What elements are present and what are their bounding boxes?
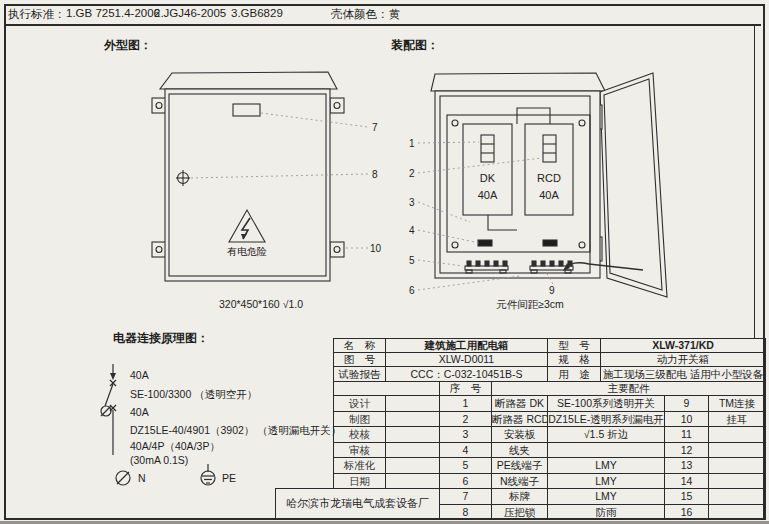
name-label: 名 称 bbox=[334, 339, 386, 353]
standard-2: 2.JGJ46-2005 bbox=[154, 7, 226, 19]
table-row: 日期 6 N线端子 LMY 14 bbox=[334, 473, 766, 489]
test-report-value: CCC：C-032-10451B-S bbox=[386, 367, 548, 382]
sign-label: 审核 bbox=[334, 442, 386, 458]
leader-label-4: 4 bbox=[409, 225, 415, 236]
item-no: 8 bbox=[440, 504, 492, 520]
item-no2: 11 bbox=[665, 427, 709, 443]
outline-caption: 320*450*160 √1.0 bbox=[180, 298, 342, 310]
schematic-spec-line: SE-100/3300 （透明空开） bbox=[130, 388, 257, 402]
schematic-title: 电器连接原理图： bbox=[113, 330, 209, 347]
breaker-rcd-amps: 40A bbox=[539, 189, 559, 201]
item-spec: 防雨 bbox=[548, 504, 665, 520]
cable-gland bbox=[478, 240, 492, 246]
item-name: 断路器 DK bbox=[492, 396, 548, 412]
item-name: 断路器 RCD bbox=[492, 411, 548, 427]
table-row: 标准化 5 PE线端子 LMY 13 bbox=[334, 458, 766, 474]
item-name: 安装板 bbox=[492, 427, 548, 443]
item-name: 压把锁 bbox=[492, 504, 548, 520]
item-name2 bbox=[709, 504, 766, 520]
item-no: 3 bbox=[440, 427, 492, 443]
sign-label: 制图 bbox=[334, 411, 386, 427]
item-no2: 15 bbox=[665, 489, 709, 505]
spec-label: 规 格 bbox=[548, 353, 601, 367]
item-no2: 13 bbox=[665, 458, 709, 474]
item-no2: 9 bbox=[665, 396, 709, 412]
seq-header: 序 号 bbox=[440, 382, 492, 396]
leader-label-2: 2 bbox=[409, 168, 415, 179]
item-name2 bbox=[709, 427, 766, 443]
item-no: 1 bbox=[440, 396, 492, 412]
table-row: 校核 3 安装板 √1.5 折边 11 bbox=[334, 427, 766, 443]
breaker-symbol bbox=[101, 364, 116, 455]
sign-cell bbox=[386, 396, 440, 412]
sign-label: 标准化 bbox=[334, 458, 386, 474]
item-no2: 12 bbox=[665, 442, 709, 458]
pe-ground-symbol bbox=[201, 464, 215, 485]
table-row: 审核 4 线夹 12 bbox=[334, 442, 766, 458]
execution-standards-bar: 执行标准： 1.GB 7251.4-2006 2.JGJ46-2005 3.GB… bbox=[4, 4, 761, 26]
model-label: 型 号 bbox=[548, 339, 601, 353]
schematic-spec-line: DZ15LE-40/4901（3902） （透明漏电开关） bbox=[130, 424, 341, 438]
item-name: 线夹 bbox=[492, 442, 548, 458]
right-margin-line bbox=[754, 24, 755, 338]
outline-drawing: 有电危险 7 8 10 bbox=[140, 58, 390, 320]
parts-header-row: 序 号 主要配件 bbox=[333, 381, 766, 396]
shell-color-value: 黄 bbox=[389, 7, 401, 22]
leader-label-6: 6 bbox=[409, 285, 415, 296]
leader-label-10: 10 bbox=[370, 243, 382, 254]
neutral-symbol bbox=[116, 471, 130, 485]
leader-label-1: 1 bbox=[409, 138, 415, 149]
item-no: 5 bbox=[440, 458, 492, 474]
item-name2 bbox=[709, 458, 766, 474]
title-block: 名 称 建筑施工用配电箱 型 号 XLW-371/KD 图 号 XLW-D001… bbox=[333, 338, 765, 519]
item-name2: 挂耳 bbox=[709, 411, 766, 427]
item-no2: 10 bbox=[665, 411, 709, 427]
title-block-header: 名 称 建筑施工用配电箱 型 号 XLW-371/KD 图 号 XLW-D001… bbox=[333, 338, 766, 382]
item-no: 7 bbox=[440, 489, 492, 505]
assembly-title: 装配图： bbox=[391, 37, 439, 54]
item-name2 bbox=[709, 489, 766, 505]
sign-cell bbox=[386, 473, 440, 489]
standard-3: 3.GB6829 bbox=[231, 7, 283, 19]
item-name: 标牌 bbox=[492, 489, 548, 505]
outline-title: 外型图： bbox=[104, 37, 152, 54]
table-row: 制图 2 断路器 RCD DZ15LE-透明系列漏电开 10 挂耳 bbox=[334, 411, 766, 427]
shell-color-label: 壳体颜色： bbox=[331, 7, 389, 22]
item-no: 4 bbox=[440, 442, 492, 458]
assembly-caption: 元件间距≥3cm bbox=[455, 298, 605, 312]
warning-text: 有电危险 bbox=[227, 246, 267, 257]
empty-cell bbox=[334, 382, 440, 396]
open-door bbox=[597, 73, 667, 297]
item-name: N线端子 bbox=[492, 473, 548, 489]
parts-header: 主要配件 bbox=[492, 382, 766, 396]
leader-label-8: 8 bbox=[372, 169, 378, 180]
schematic-spec-line: 40A bbox=[130, 369, 149, 381]
item-spec: √1.5 折边 bbox=[548, 427, 665, 443]
item-no2: 14 bbox=[665, 473, 709, 489]
item-spec: SE-100系列透明开关 bbox=[548, 396, 665, 412]
neutral-label: N bbox=[138, 472, 146, 484]
item-name2: TM连接 bbox=[709, 396, 766, 412]
assembly-drawing: DK 40A RCD 40A 1 2 3 4 5 6 9 bbox=[403, 56, 705, 308]
manufacturer: 哈尔滨市龙瑞电气成套设备厂 bbox=[275, 488, 440, 519]
pe-label: PE bbox=[222, 472, 236, 484]
breaker-dk-label: DK bbox=[480, 172, 496, 184]
item-spec: LMY bbox=[548, 489, 665, 505]
item-name: PE线端子 bbox=[492, 458, 548, 474]
model-value: XLW-371/KD bbox=[601, 339, 766, 353]
item-name2 bbox=[709, 442, 766, 458]
cable-gland bbox=[543, 240, 557, 246]
cabinet-roof bbox=[160, 72, 337, 89]
standards-label: 执行标准： bbox=[8, 7, 66, 22]
sign-cell bbox=[386, 411, 440, 427]
leader-label-7: 7 bbox=[372, 122, 378, 133]
sign-cell bbox=[386, 442, 440, 458]
usage-value: 施工现场三级配电 适用中小型设备 bbox=[601, 367, 766, 382]
breaker-dk-amps: 40A bbox=[478, 189, 498, 201]
drawing-no-value: XLW-D0011 bbox=[386, 353, 548, 367]
sign-cell bbox=[386, 427, 440, 443]
item-spec: LMY bbox=[548, 458, 665, 474]
assembly-roof bbox=[431, 73, 605, 91]
sign-cell bbox=[386, 458, 440, 474]
standard-1: 1.GB 7251.4-2006 bbox=[66, 7, 160, 19]
test-report-label: 试验报告 bbox=[334, 367, 386, 382]
item-spec: LMY bbox=[548, 473, 665, 489]
schematic-spec-line: (30mA 0.1S) bbox=[130, 454, 188, 466]
usage-label: 用 途 bbox=[548, 367, 601, 382]
item-name2 bbox=[709, 473, 766, 489]
leader-label-5: 5 bbox=[409, 255, 415, 266]
item-no2: 16 bbox=[665, 504, 709, 520]
sign-label: 校核 bbox=[334, 427, 386, 443]
sign-label: 设计 bbox=[334, 396, 386, 412]
item-no: 6 bbox=[440, 473, 492, 489]
item-spec: DZ15LE-透明系列漏电开 bbox=[548, 411, 665, 427]
schematic-spec-line: 40A/4P（40A/3P） bbox=[130, 440, 220, 454]
item-spec bbox=[548, 442, 665, 458]
drawing-no-label: 图 号 bbox=[334, 353, 386, 367]
leader-label-3: 3 bbox=[409, 197, 415, 208]
breaker-rcd-label: RCD bbox=[537, 172, 561, 184]
spec-value: 动力开关箱 bbox=[601, 353, 766, 367]
schematic-spec-line: 40A bbox=[130, 406, 149, 418]
item-no: 2 bbox=[440, 411, 492, 427]
sign-label: 日期 bbox=[334, 473, 386, 489]
leader-label-9: 9 bbox=[549, 285, 555, 296]
table-row: 设计 1 断路器 DK SE-100系列透明开关 9 TM连接 bbox=[334, 396, 766, 412]
product-name: 建筑施工用配电箱 bbox=[386, 339, 548, 353]
